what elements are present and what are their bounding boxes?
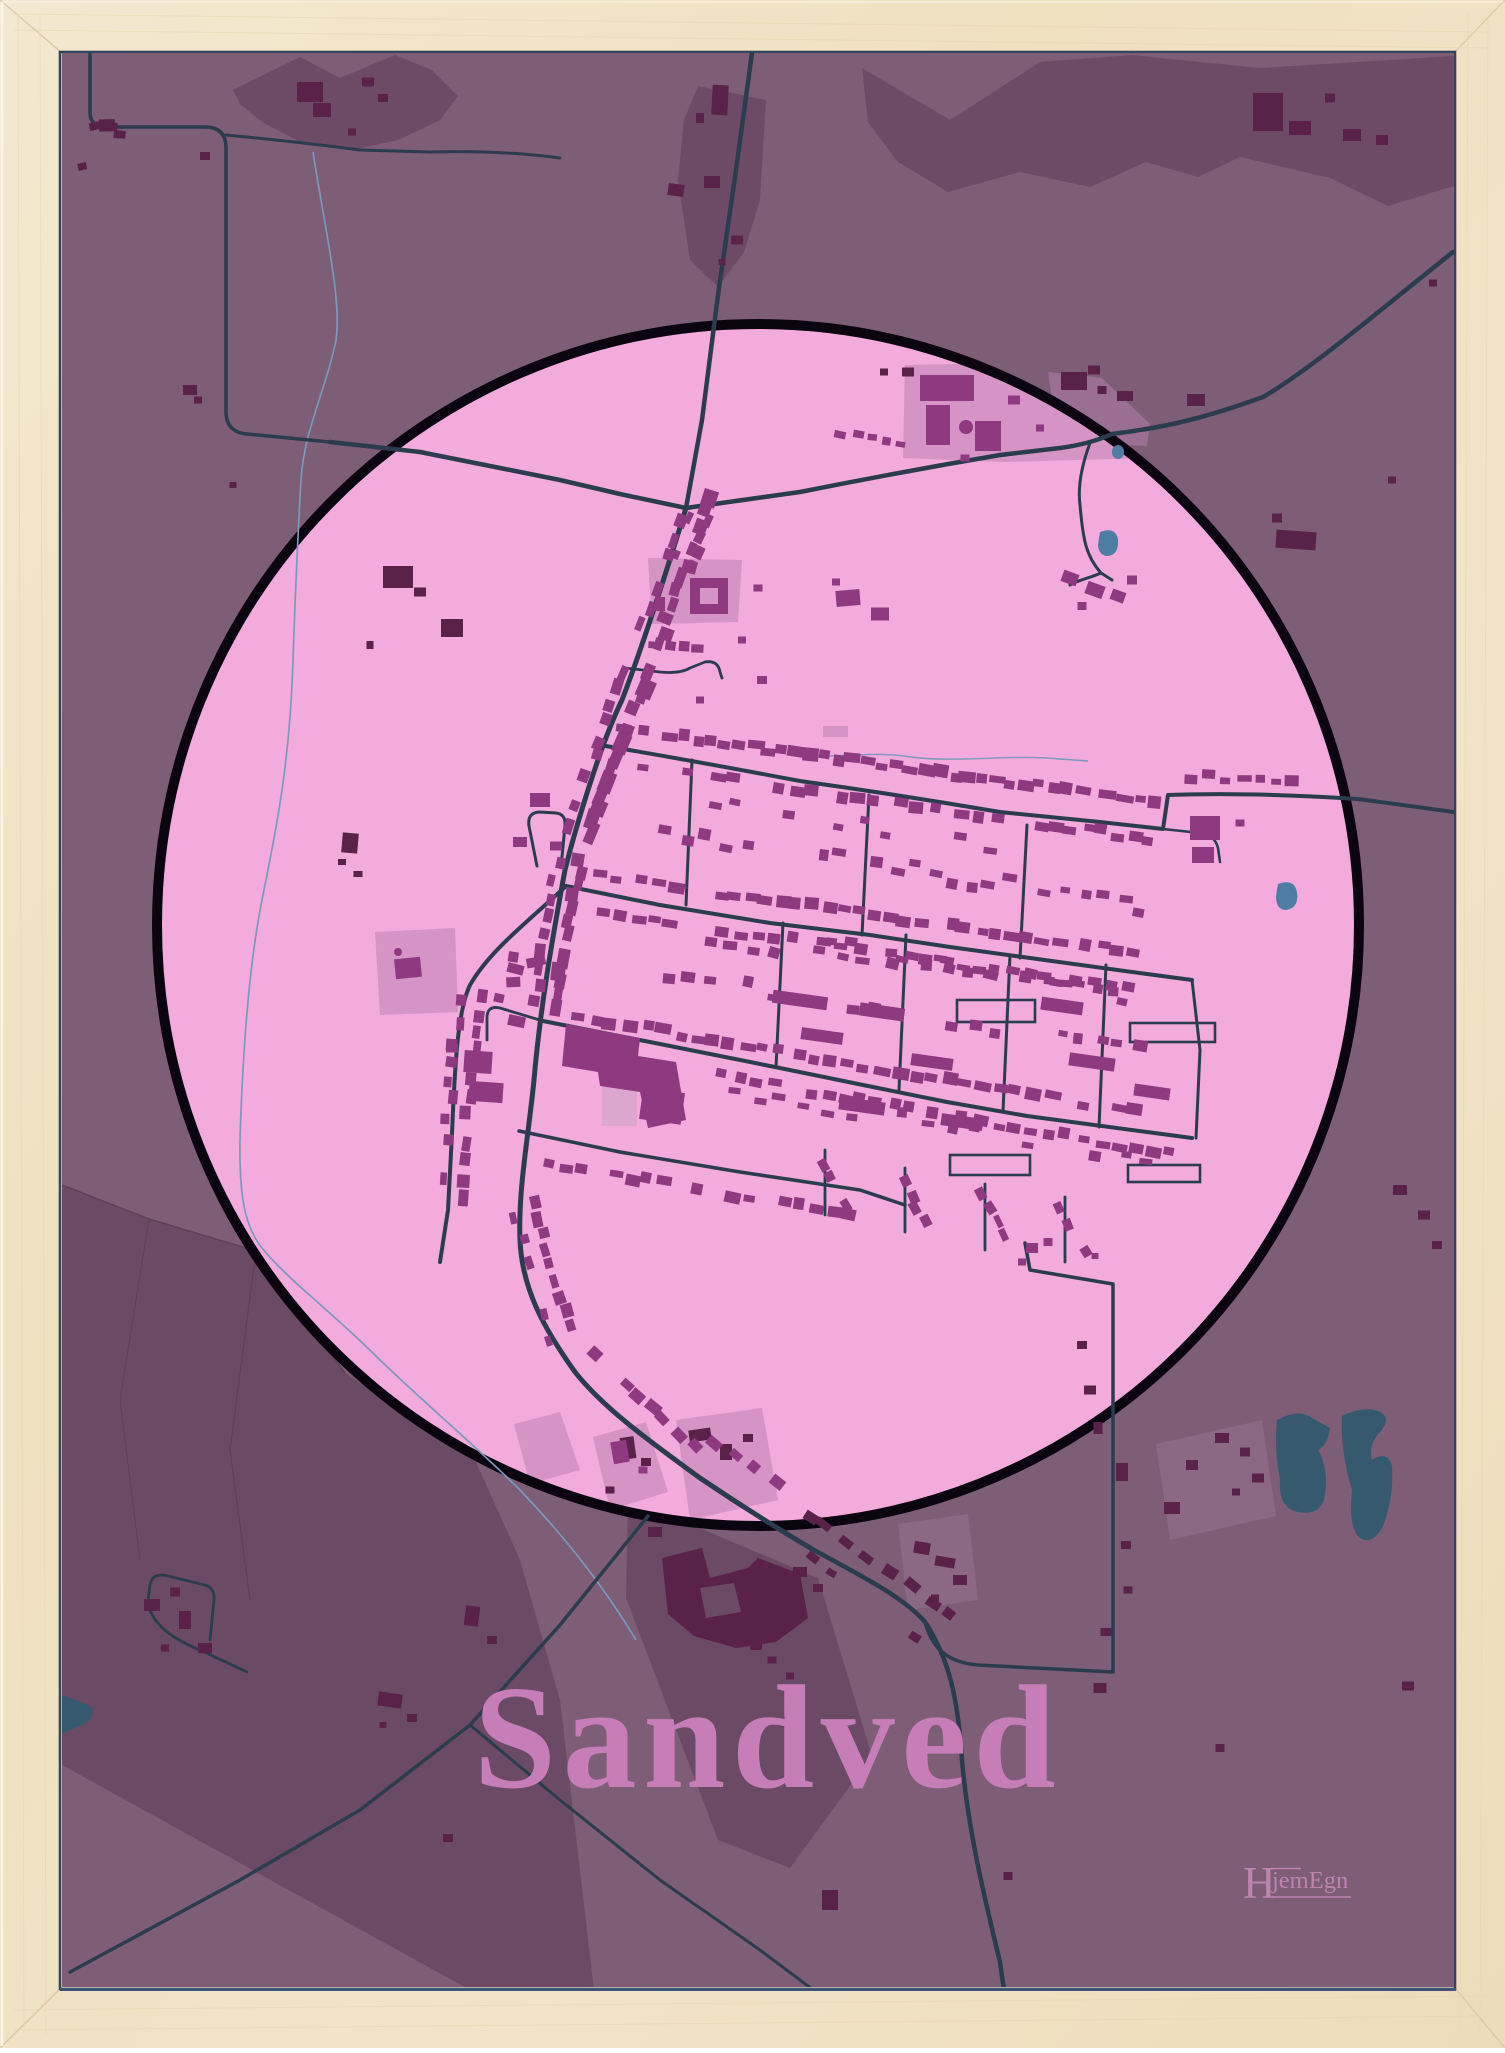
- svg-text:Sandved: Sandved: [474, 1656, 1062, 1820]
- svg-text:jemEgn: jemEgn: [1271, 1867, 1348, 1894]
- svg-text:H: H: [1243, 1858, 1276, 1908]
